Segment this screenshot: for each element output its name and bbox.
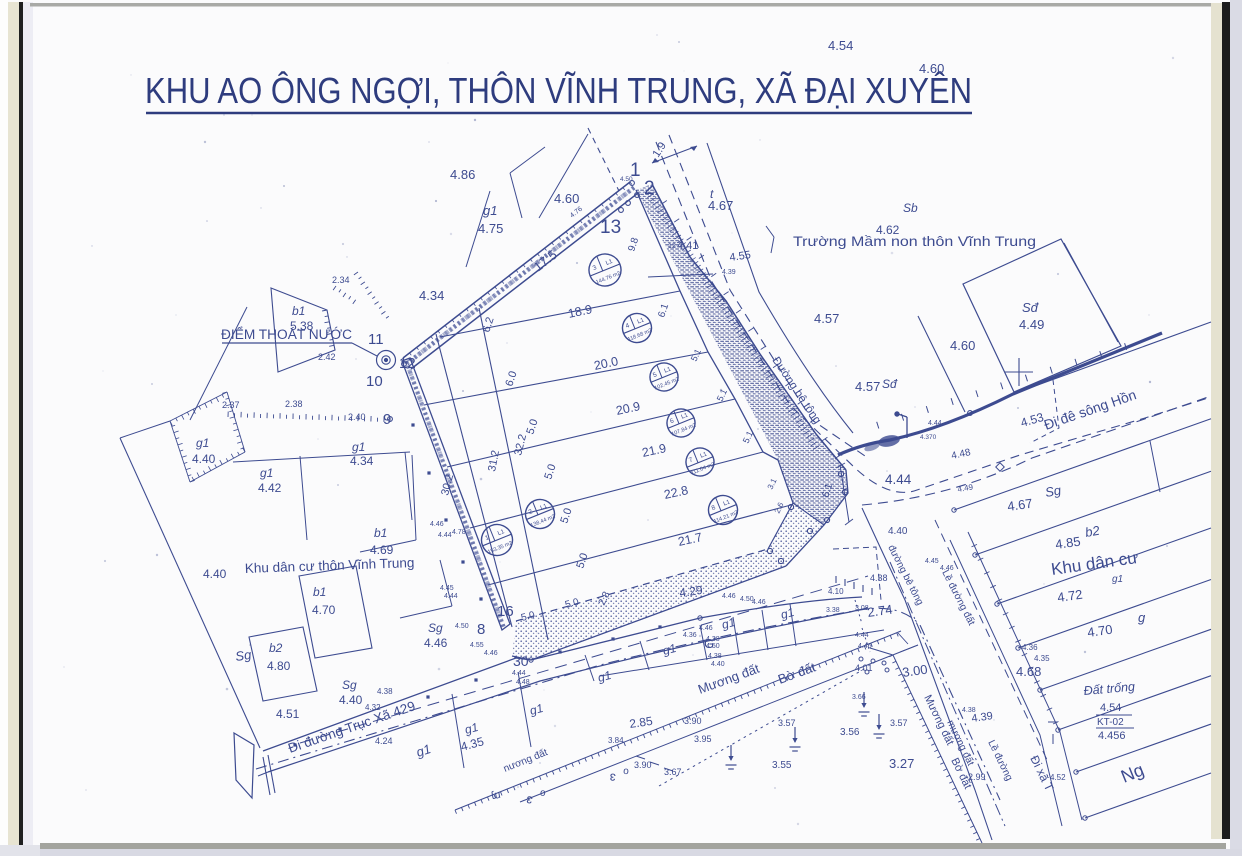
svg-text:Sg: Sg <box>428 621 443 635</box>
svg-text:ĐIỂM THOÁT NƯỚC: ĐIỂM THOÁT NƯỚC <box>221 327 352 342</box>
svg-text:3.27: 3.27 <box>889 756 914 771</box>
svg-text:4.35: 4.35 <box>1034 654 1050 663</box>
svg-text:4.01: 4.01 <box>855 663 873 673</box>
svg-text:4.57: 4.57 <box>814 311 839 326</box>
svg-text:g1: g1 <box>196 436 209 450</box>
svg-text:4.50: 4.50 <box>620 176 633 183</box>
svg-text:8: 8 <box>477 621 485 638</box>
svg-text:4.370: 4.370 <box>920 434 937 441</box>
svg-text:12: 12 <box>668 243 676 250</box>
svg-text:4.45: 4.45 <box>440 585 454 592</box>
svg-text:4.34: 4.34 <box>419 288 444 303</box>
svg-text:3.57: 3.57 <box>778 718 796 728</box>
svg-text:4.38: 4.38 <box>870 573 888 583</box>
svg-text:3.95: 3.95 <box>694 734 712 744</box>
svg-text:Sđ: Sđ <box>1022 300 1040 315</box>
svg-text:4.41: 4.41 <box>677 240 698 252</box>
svg-text:10: 10 <box>366 373 383 390</box>
svg-text:g1: g1 <box>352 440 365 454</box>
svg-text:4.48: 4.48 <box>516 679 530 686</box>
svg-text:4.60: 4.60 <box>919 61 944 76</box>
svg-text:Sg: Sg <box>342 678 357 692</box>
svg-text:4.51: 4.51 <box>276 707 300 721</box>
svg-text:3.38: 3.38 <box>826 607 840 614</box>
svg-text:g1: g1 <box>260 466 273 480</box>
svg-text:4.80: 4.80 <box>267 659 291 673</box>
svg-text:4.78: 4.78 <box>452 529 466 536</box>
svg-text:Trường Mầm non thôn Vĩnh Trung: Trường Mầm non thôn Vĩnh Trung <box>793 233 1036 249</box>
svg-text:4.24: 4.24 <box>375 736 393 746</box>
svg-text:3.66: 3.66 <box>852 694 866 701</box>
svg-text:4.40: 4.40 <box>192 452 216 466</box>
svg-text:4.44: 4.44 <box>928 420 942 427</box>
svg-text:4.50: 4.50 <box>706 643 720 650</box>
svg-text:4.50: 4.50 <box>455 623 469 630</box>
svg-text:Sb: Sb <box>903 201 918 215</box>
svg-text:2.38: 2.38 <box>285 399 303 409</box>
svg-text:4.44: 4.44 <box>512 670 526 677</box>
svg-text:4.46: 4.46 <box>484 650 498 657</box>
svg-text:3.57: 3.57 <box>890 718 908 728</box>
svg-text:2.42: 2.42 <box>318 352 336 362</box>
svg-text:b1: b1 <box>313 585 326 599</box>
svg-text:4.10: 4.10 <box>828 587 844 596</box>
svg-text:3.55: 3.55 <box>772 760 792 771</box>
svg-text:2.37: 2.37 <box>222 400 240 410</box>
svg-text:4.40: 4.40 <box>203 567 227 581</box>
svg-text:b1: b1 <box>292 304 305 318</box>
svg-text:4.34: 4.34 <box>350 454 374 468</box>
svg-text:4.49: 4.49 <box>1019 317 1044 332</box>
svg-text:2.34: 2.34 <box>332 275 350 285</box>
svg-text:4.57: 4.57 <box>855 379 880 394</box>
svg-text:4.456: 4.456 <box>1098 730 1126 742</box>
svg-text:4.54: 4.54 <box>828 38 853 53</box>
svg-text:g1: g1 <box>483 203 497 218</box>
svg-text:4.44: 4.44 <box>444 593 458 600</box>
svg-text:3.90: 3.90 <box>634 760 652 770</box>
svg-text:KHU AO ÔNG NGỢI, THÔN VĨNH TRU: KHU AO ÔNG NGỢI, THÔN VĨNH TRUNG, XÃ ĐẠI… <box>145 70 972 111</box>
svg-text:Sg: Sg <box>234 647 253 664</box>
svg-text:3.67: 3.67 <box>664 767 682 777</box>
svg-text:4.44: 4.44 <box>438 532 452 539</box>
svg-text:g1: g1 <box>1112 574 1123 585</box>
svg-text:2: 2 <box>644 178 655 199</box>
svg-text:4.38: 4.38 <box>377 687 393 696</box>
svg-text:4.39: 4.39 <box>722 269 736 276</box>
svg-text:KT-02: KT-02 <box>1097 717 1124 728</box>
svg-text:4.67: 4.67 <box>708 198 733 213</box>
svg-text:4.46: 4.46 <box>424 636 448 650</box>
svg-text:b2: b2 <box>269 641 283 655</box>
svg-text:3.90: 3.90 <box>684 716 702 726</box>
svg-text:4.69: 4.69 <box>370 543 394 557</box>
svg-text:13: 13 <box>600 217 621 238</box>
svg-text:4.40: 4.40 <box>711 661 725 668</box>
svg-text:4.38: 4.38 <box>706 636 720 643</box>
svg-text:12: 12 <box>399 355 416 372</box>
svg-text:4.36: 4.36 <box>1022 643 1038 652</box>
svg-text:4.45: 4.45 <box>925 558 939 565</box>
svg-text:4.60: 4.60 <box>554 191 579 206</box>
svg-text:Sđ: Sđ <box>882 377 898 391</box>
svg-text:4.55: 4.55 <box>470 642 484 649</box>
svg-text:11: 11 <box>368 331 384 348</box>
svg-text:4.54: 4.54 <box>1100 702 1121 714</box>
svg-text:4.46: 4.46 <box>699 625 713 632</box>
svg-text:9: 9 <box>383 411 391 428</box>
svg-text:4.40: 4.40 <box>339 693 363 707</box>
svg-text:b1: b1 <box>374 526 387 540</box>
svg-text:4.40: 4.40 <box>888 526 908 537</box>
svg-text:16: 16 <box>497 603 514 620</box>
svg-text:4.46: 4.46 <box>722 593 736 600</box>
svg-text:4.44: 4.44 <box>885 472 912 487</box>
svg-text:3.84: 3.84 <box>608 736 624 745</box>
svg-text:4.60: 4.60 <box>950 338 975 353</box>
svg-text:4.46: 4.46 <box>858 643 872 650</box>
svg-text:4.42: 4.42 <box>258 481 282 495</box>
svg-text:4.46: 4.46 <box>752 599 766 606</box>
svg-text:3.56: 3.56 <box>840 727 860 738</box>
svg-text:g: g <box>1138 610 1146 625</box>
svg-text:4.36: 4.36 <box>683 632 697 639</box>
svg-text:4.44: 4.44 <box>855 632 869 639</box>
svg-text:4.68: 4.68 <box>1016 664 1041 679</box>
svg-text:4.75: 4.75 <box>478 221 503 236</box>
svg-text:4.38: 4.38 <box>708 653 722 660</box>
svg-text:4.46: 4.46 <box>430 521 444 528</box>
svg-text:4.86: 4.86 <box>450 167 475 182</box>
svg-text:30: 30 <box>513 653 529 669</box>
svg-text:2.40: 2.40 <box>348 412 366 422</box>
svg-text:4.70: 4.70 <box>312 603 336 617</box>
